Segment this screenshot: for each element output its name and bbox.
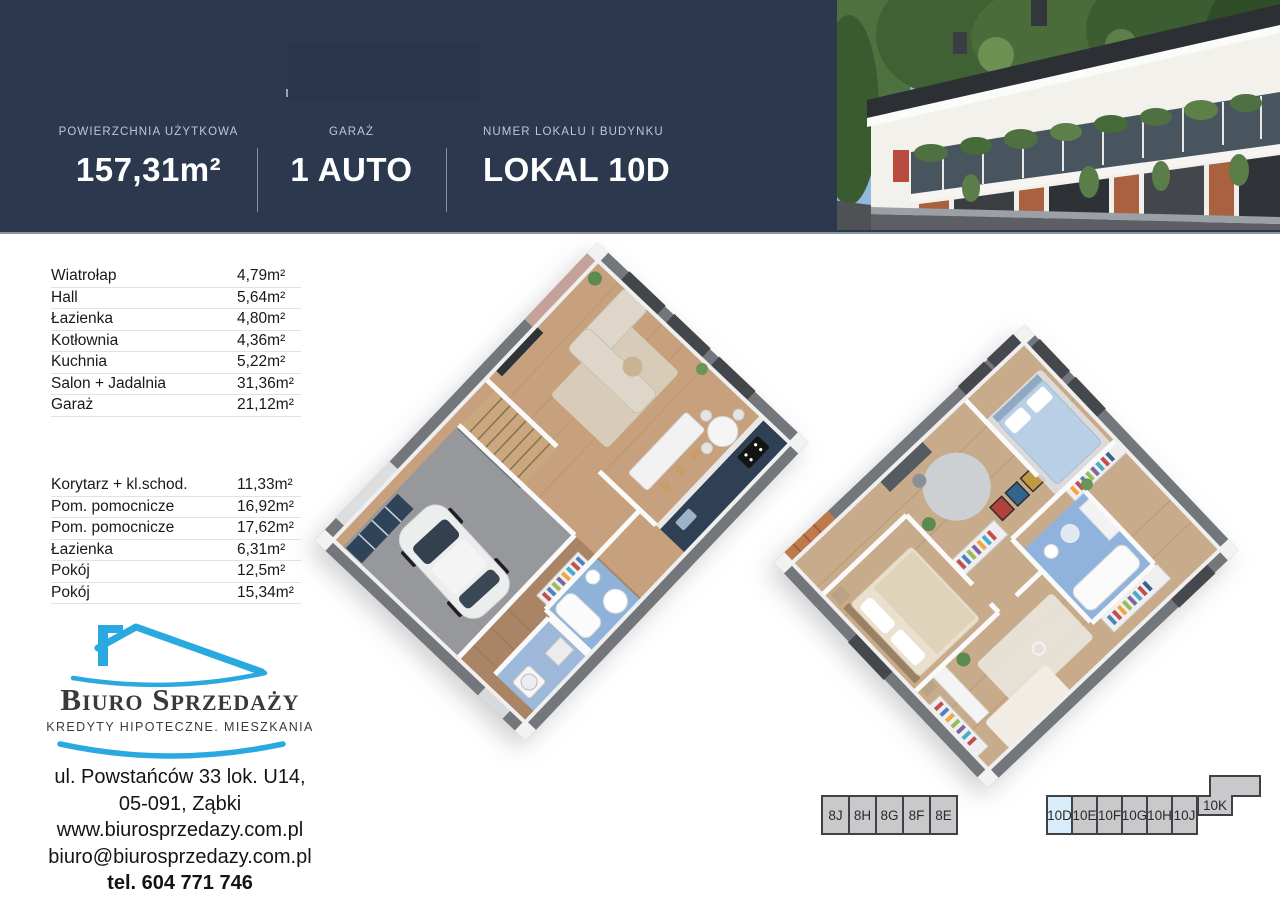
address-line: ul. Powstańców 33 lok. U14, [15,764,345,791]
room-row: Pom. pomocnicze17,62m² [51,518,301,540]
room-area: 15,34m² [237,583,301,604]
unit-cell-label: 10J [1174,808,1196,823]
agency-tagline: KREDYTY HIPOTECZNE. MIESZKANIA [40,720,320,734]
agency-logo: Biuro Sprzedaży KREDYTY HIPOTECZNE. MIES… [40,612,320,772]
agency-email: biuro@biurosprzedazy.com.pl [15,844,345,871]
room-row: Pom. pomocnicze16,92m² [51,497,301,519]
room-name: Pom. pomocnicze [51,497,237,518]
upper-floor-plan [755,322,1280,797]
room-area: 11,33m² [237,475,301,496]
room-row: Pokój15,34m² [51,583,301,605]
unit-cell-label: 8E [935,808,952,823]
stat-label: GARAŻ [257,126,446,138]
room-area: 16,92m² [237,497,301,518]
unit-cell-label: 8F [909,808,925,823]
room-list-ground: Wiatrołap4,79m² Hall5,64m² Łazienka4,80m… [51,266,301,417]
unit-cell-label: 10F [1098,808,1121,823]
address-line: 05-091, Ząbki [15,791,345,818]
room-area: 4,80m² [237,309,301,330]
stat-value: LOKAL 10D [483,151,713,189]
room-name: Kuchnia [51,352,237,373]
room-name: Salon + Jadalnia [51,374,237,395]
unit-cell-label: 8J [828,808,842,823]
room-name: Łazienka [51,309,237,330]
unit-cell-label: 10D [1047,808,1072,823]
building-10-diagram [1047,776,1260,834]
room-name: Hall [51,288,237,309]
unit-cell-label: 8G [880,808,898,823]
room-row: Salon + Jadalnia31,36m² [51,374,301,396]
room-area: 4,79m² [237,266,301,287]
room-name: Korytarz + kl.schod. [51,475,237,496]
room-name: Pokój [51,561,237,582]
room-row: Garaż21,12m² [51,395,301,417]
stat-unit-number: NUMER LOKALU I BUDYNKU LOKAL 10D [483,126,713,189]
room-name: Pom. pomocnicze [51,518,237,539]
stat-label: NUMER LOKALU I BUDYNKU [483,126,713,138]
unit-location-diagrams: 8J 8H 8G 8F 8E 10D 10E 10F 10G 10H 10J 1… [810,770,1270,850]
stat-usable-area: POWIERZCHNIA UŻYTKOWA 157,31m² [40,126,257,189]
stat-value: 1 AUTO [257,151,446,189]
room-row: Pokój12,5m² [51,561,301,583]
unit-cell-label: 10G [1122,808,1148,823]
room-area: 17,62m² [237,518,301,539]
room-name: Łazienka [51,540,237,561]
stat-garage: GARAŻ 1 AUTO [257,126,446,189]
header-tick-mark [286,89,288,97]
stat-label: POWIERZCHNIA UŻYTKOWA [40,126,257,138]
stat-value: 157,31m² [40,151,257,189]
unit-cell-label: 10E [1072,808,1096,823]
building-photo [831,0,1280,230]
room-row: Kuchnia5,22m² [51,352,301,374]
room-area: 12,5m² [237,561,301,582]
unit-cell-label: 10H [1147,808,1172,823]
room-name: Pokój [51,583,237,604]
room-row: Kotłownia4,36m² [51,331,301,353]
flyer-page: POWIERZCHNIA UŻYTKOWA 157,31m² GARAŻ 1 A… [0,0,1280,904]
room-list-upper: Korytarz + kl.schod.11,33m² Pom. pomocni… [51,475,301,604]
unit-cell-label: 8H [854,808,871,823]
room-area: 31,36m² [237,374,301,395]
room-area: 5,22m² [237,352,301,373]
header-band: POWIERZCHNIA UŻYTKOWA 157,31m² GARAŻ 1 A… [0,0,1280,234]
room-area: 6,31m² [237,540,301,561]
room-row: Łazienka4,80m² [51,309,301,331]
room-row: Łazienka6,31m² [51,540,301,562]
agency-phone: tel. 604 771 746 [15,870,345,897]
header-overlay-box [287,42,480,102]
room-row: Wiatrołap4,79m² [51,266,301,288]
room-area: 5,64m² [237,288,301,309]
ground-floor-plan [312,243,812,748]
room-area: 21,12m² [237,395,301,416]
room-name: Wiatrołap [51,266,237,287]
room-name: Kotłownia [51,331,237,352]
room-name: Garaż [51,395,237,416]
room-area: 4,36m² [237,331,301,352]
agency-name: Biuro Sprzedaży [40,682,320,718]
unit-cell-label: 10K [1203,798,1227,813]
agency-address-block: ul. Powstańców 33 lok. U14, 05-091, Ząbk… [15,764,345,897]
header-divider [446,148,447,212]
agency-website: www.biurosprzedazy.com.pl [15,817,345,844]
room-row: Hall5,64m² [51,288,301,310]
room-row: Korytarz + kl.schod.11,33m² [51,475,301,497]
